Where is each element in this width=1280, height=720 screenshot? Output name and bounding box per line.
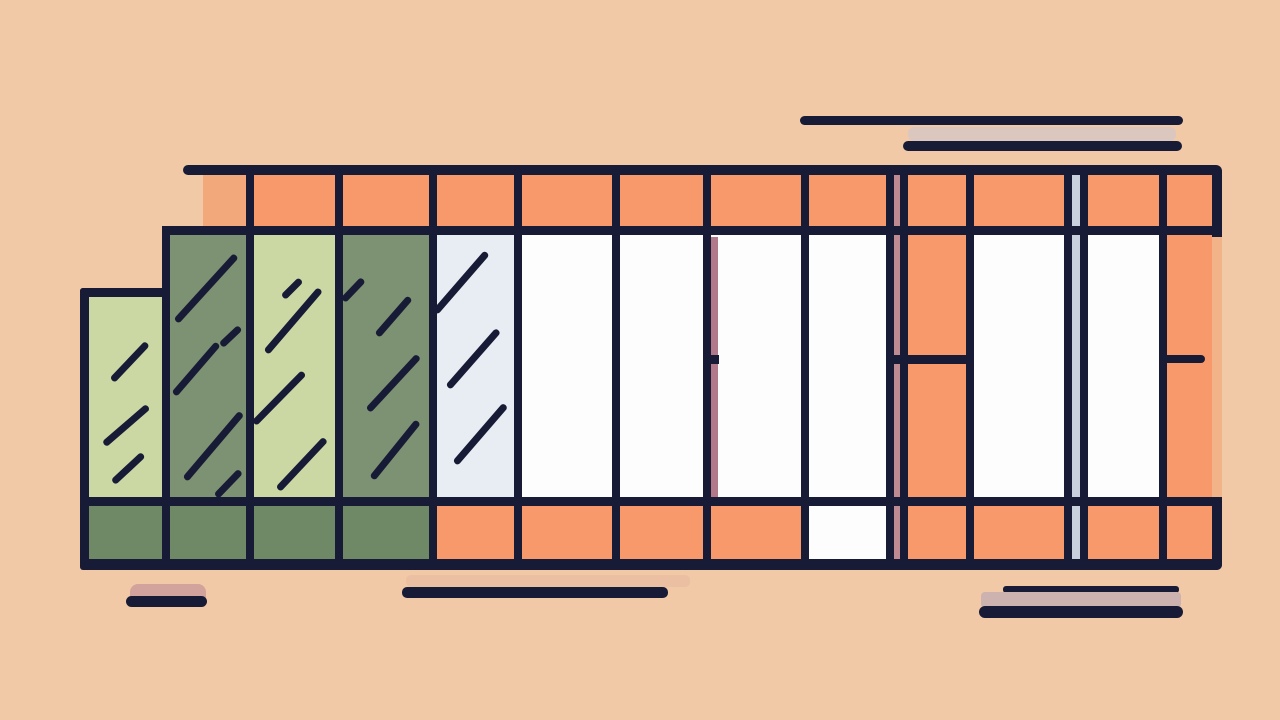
panel-8-fill: [705, 230, 805, 506]
panel-7-fill: [616, 230, 705, 506]
orange-bay-divider: [886, 355, 970, 364]
decor-line-bottom-mid: [402, 587, 668, 598]
panel-6-fill: [518, 230, 616, 506]
panel-11-fill: [970, 230, 1068, 506]
panel-3-fill: [250, 230, 339, 506]
roof-band-bottom-line: [162, 226, 1222, 235]
base-band-sage-fill: [84, 506, 433, 559]
mauve-shadow-stripe: [711, 237, 718, 506]
base-band-white-cell: [805, 506, 890, 559]
base-bottom-line: [80, 559, 1222, 570]
panel-2-fill: [166, 230, 250, 506]
decor-shadow-band-mid: [406, 575, 690, 587]
decor-line-bottom-right-thick: [979, 606, 1183, 618]
panel-9-fill: [805, 230, 890, 506]
mullion-166: [162, 226, 170, 570]
base-band-top-line: [80, 497, 1222, 506]
frame-left-edge: [80, 288, 89, 570]
panel-1-top-line: [80, 288, 170, 297]
decor-line-bottom-left: [126, 596, 207, 607]
panel-13-orange-bay-fill: [1163, 230, 1212, 506]
right-bay-tick: [1159, 355, 1205, 363]
roof-band-muted-block: [203, 175, 250, 228]
decor-shadow-band-top: [908, 127, 1176, 141]
mauve-stripe-tick: [710, 355, 719, 364]
decor-line-top-short: [903, 141, 1182, 151]
panel-5-fill: [433, 230, 518, 506]
facade-illustration: [0, 0, 1280, 720]
top-rail: [183, 165, 1217, 175]
decor-line-top-long: [800, 116, 1183, 125]
